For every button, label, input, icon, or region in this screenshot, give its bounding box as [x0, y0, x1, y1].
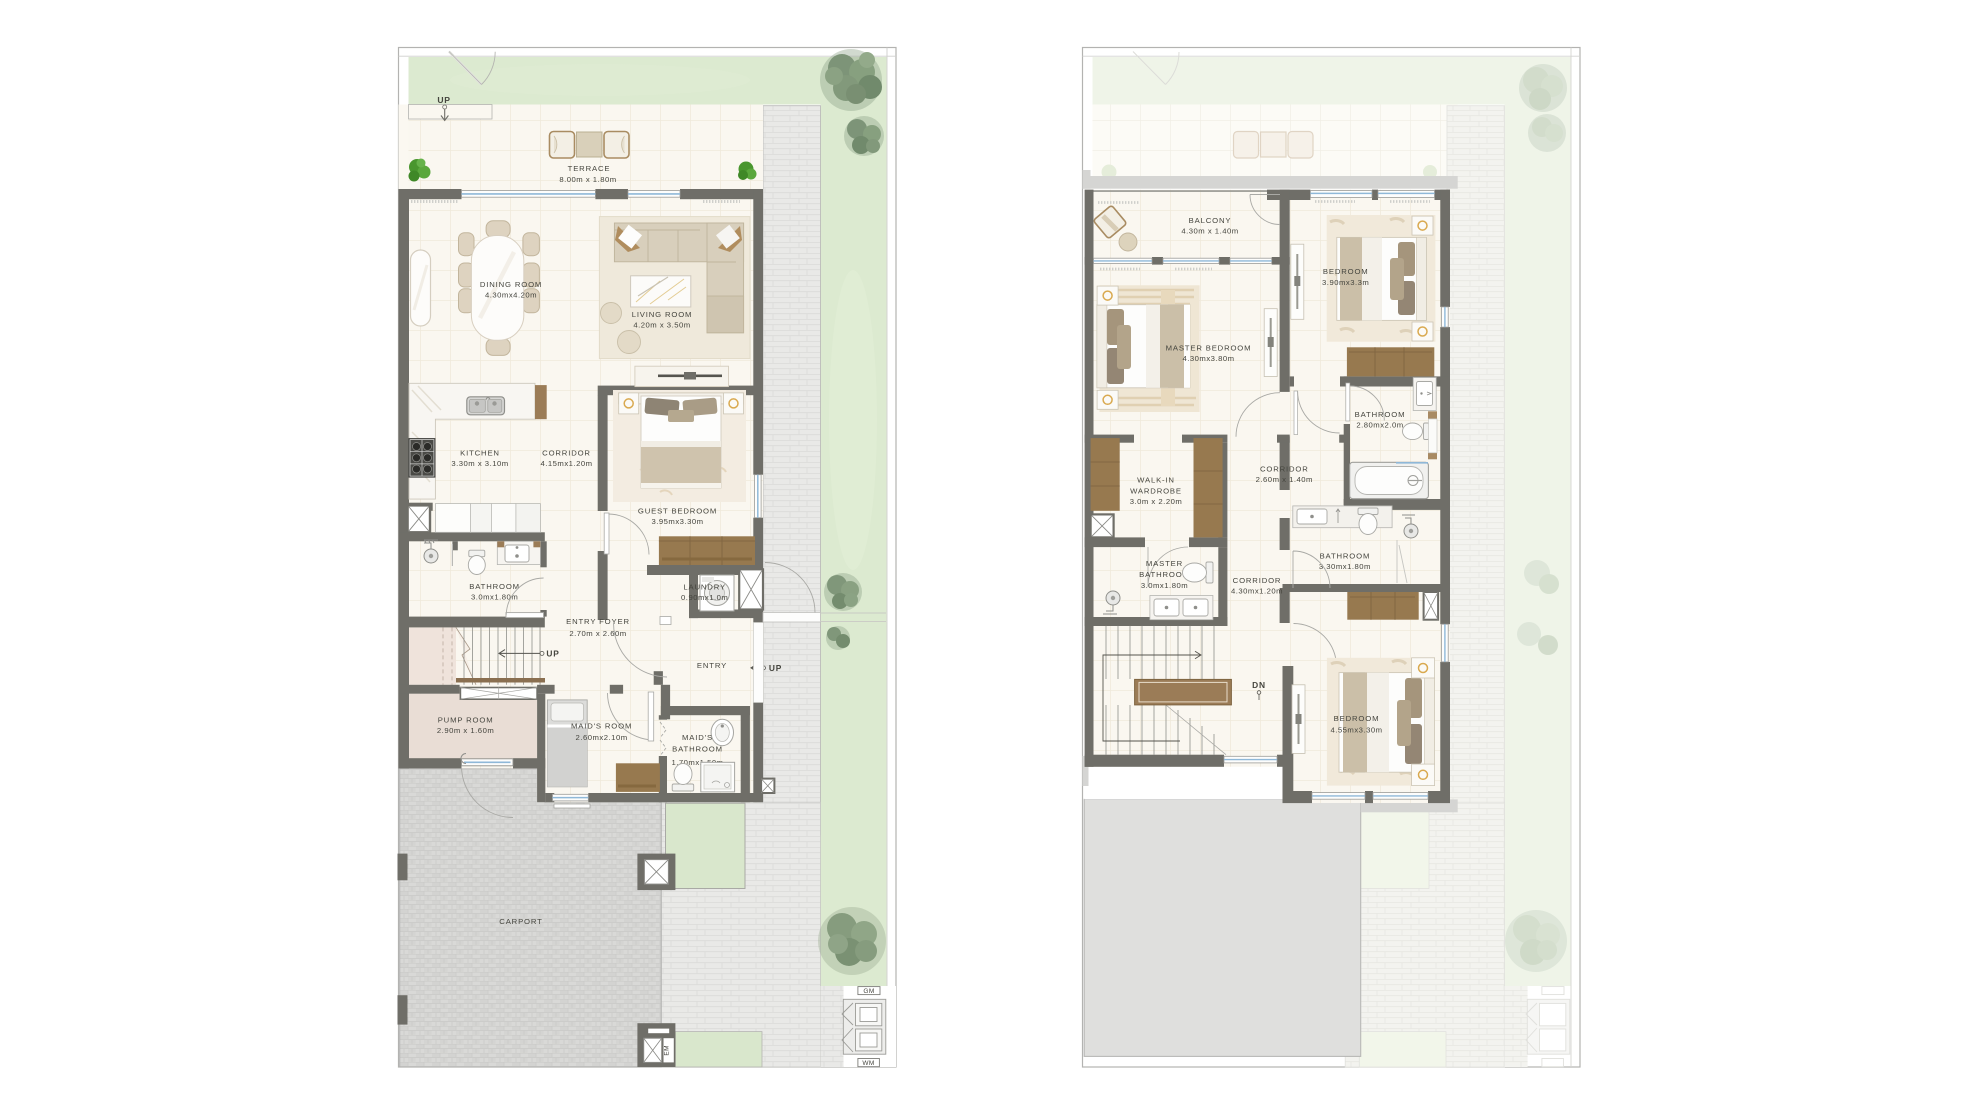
svg-text:4.30mx1.20m: 4.30mx1.20m	[1231, 587, 1283, 596]
svg-text:LIVING ROOM: LIVING ROOM	[632, 310, 693, 319]
svg-text:BEDROOM: BEDROOM	[1334, 714, 1380, 723]
svg-text:BATHROOM: BATHROOM	[672, 745, 723, 754]
svg-text:3.95mx3.30m: 3.95mx3.30m	[651, 517, 703, 526]
svg-text:MASTER BEDROOM: MASTER BEDROOM	[1166, 344, 1252, 353]
svg-text:CORRIDOR: CORRIDOR	[542, 449, 591, 458]
svg-text:2.70m x 2.60m: 2.70m x 2.60m	[569, 629, 626, 638]
svg-text:DN: DN	[1252, 680, 1266, 690]
svg-text:GM: GM	[863, 988, 874, 995]
svg-text:3.30m x 3.10m: 3.30m x 3.10m	[451, 459, 508, 468]
svg-text:3.0mx1.80m: 3.0mx1.80m	[1141, 581, 1188, 590]
svg-text:4.55mx3.30m: 4.55mx3.30m	[1330, 726, 1382, 735]
svg-text:3.90mx3.3m: 3.90mx3.3m	[1322, 278, 1369, 287]
svg-text:2.90m x 1.60m: 2.90m x 1.60m	[437, 726, 494, 735]
svg-text:CARPORT: CARPORT	[499, 917, 542, 926]
svg-text:8.00m x 1.80m: 8.00m x 1.80m	[559, 175, 616, 184]
svg-text:BALCONY: BALCONY	[1189, 216, 1232, 225]
svg-text:BATHROOM: BATHROOM	[469, 582, 520, 591]
svg-text:4.30m x 1.40m: 4.30m x 1.40m	[1181, 227, 1238, 236]
svg-text:3.0m x 2.20m: 3.0m x 2.20m	[1130, 497, 1183, 506]
svg-text:WALK-IN: WALK-IN	[1137, 476, 1175, 485]
svg-text:4.30mx3.80m: 4.30mx3.80m	[1182, 354, 1234, 363]
svg-text:BEDROOM: BEDROOM	[1323, 267, 1369, 276]
svg-text:UP: UP	[546, 649, 559, 659]
svg-text:CORRIDOR: CORRIDOR	[1233, 576, 1282, 585]
svg-text:MAID'S: MAID'S	[682, 733, 713, 742]
svg-text:2.60mx2.10m: 2.60mx2.10m	[576, 733, 628, 742]
svg-text:ENTRY FOYER: ENTRY FOYER	[566, 617, 630, 626]
svg-text:BATHROOM: BATHROOM	[1320, 552, 1371, 561]
svg-text:EM: EM	[664, 1045, 671, 1056]
svg-text:MAID'S ROOM: MAID'S ROOM	[571, 722, 632, 731]
svg-text:4.15mx1.20m: 4.15mx1.20m	[540, 459, 592, 468]
svg-text:2.80mx2.0m: 2.80mx2.0m	[1356, 421, 1403, 430]
svg-text:0.90mx1.0m: 0.90mx1.0m	[681, 593, 728, 602]
svg-text:4.20m x 3.50m: 4.20m x 3.50m	[633, 321, 690, 330]
svg-text:KITCHEN: KITCHEN	[460, 449, 500, 458]
svg-text:2.60m x 1.40m: 2.60m x 1.40m	[1256, 475, 1313, 484]
svg-text:WM: WM	[862, 1060, 874, 1067]
svg-text:WARDROBE: WARDROBE	[1130, 487, 1182, 496]
svg-text:4.30mx4.20m: 4.30mx4.20m	[485, 291, 537, 300]
svg-text:TERRACE: TERRACE	[568, 164, 611, 173]
svg-text:LAUNDRY: LAUNDRY	[683, 583, 726, 592]
svg-text:BATHROOM: BATHROOM	[1355, 410, 1406, 419]
svg-text:3.30mx1.80m: 3.30mx1.80m	[1319, 562, 1371, 571]
svg-text:UP: UP	[437, 95, 450, 105]
svg-text:UP: UP	[769, 663, 782, 673]
svg-text:PUMP ROOM: PUMP ROOM	[438, 716, 494, 725]
svg-text:DINING ROOM: DINING ROOM	[480, 280, 542, 289]
svg-text:MASTER: MASTER	[1146, 559, 1183, 568]
svg-text:CORRIDOR: CORRIDOR	[1260, 465, 1309, 474]
svg-text:ENTRY: ENTRY	[697, 661, 727, 670]
svg-text:GUEST BEDROOM: GUEST BEDROOM	[638, 507, 717, 516]
